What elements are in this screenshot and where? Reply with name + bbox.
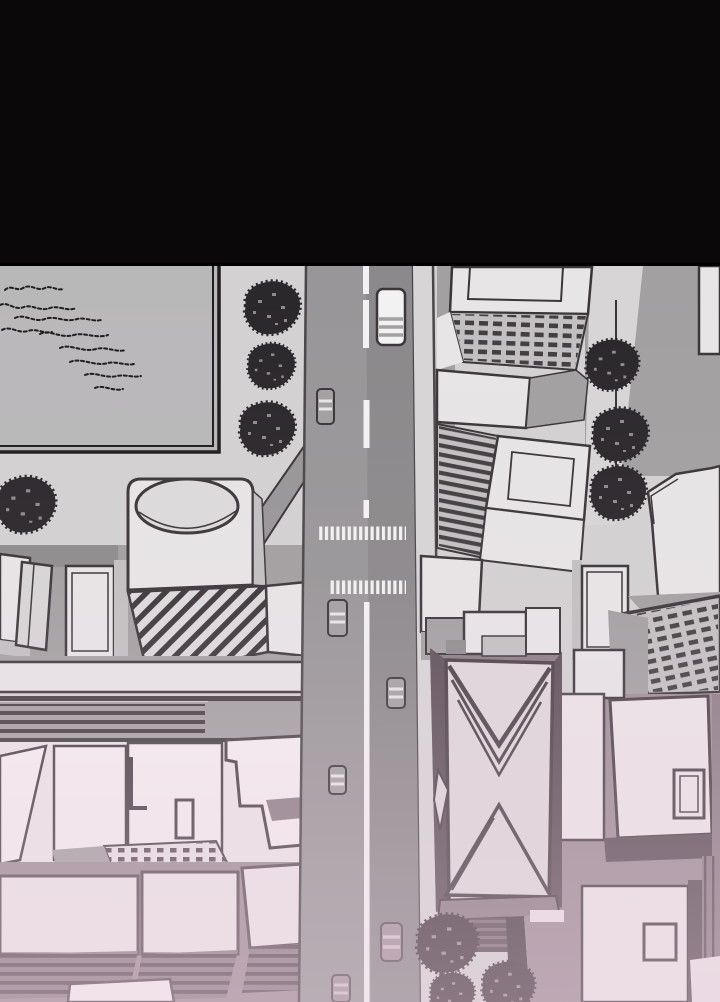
aerial-city-illustration (0, 0, 720, 1002)
black-letterbox-band (0, 0, 720, 266)
comic-panel (0, 0, 720, 1002)
pink-haze-overlay (0, 266, 720, 1002)
